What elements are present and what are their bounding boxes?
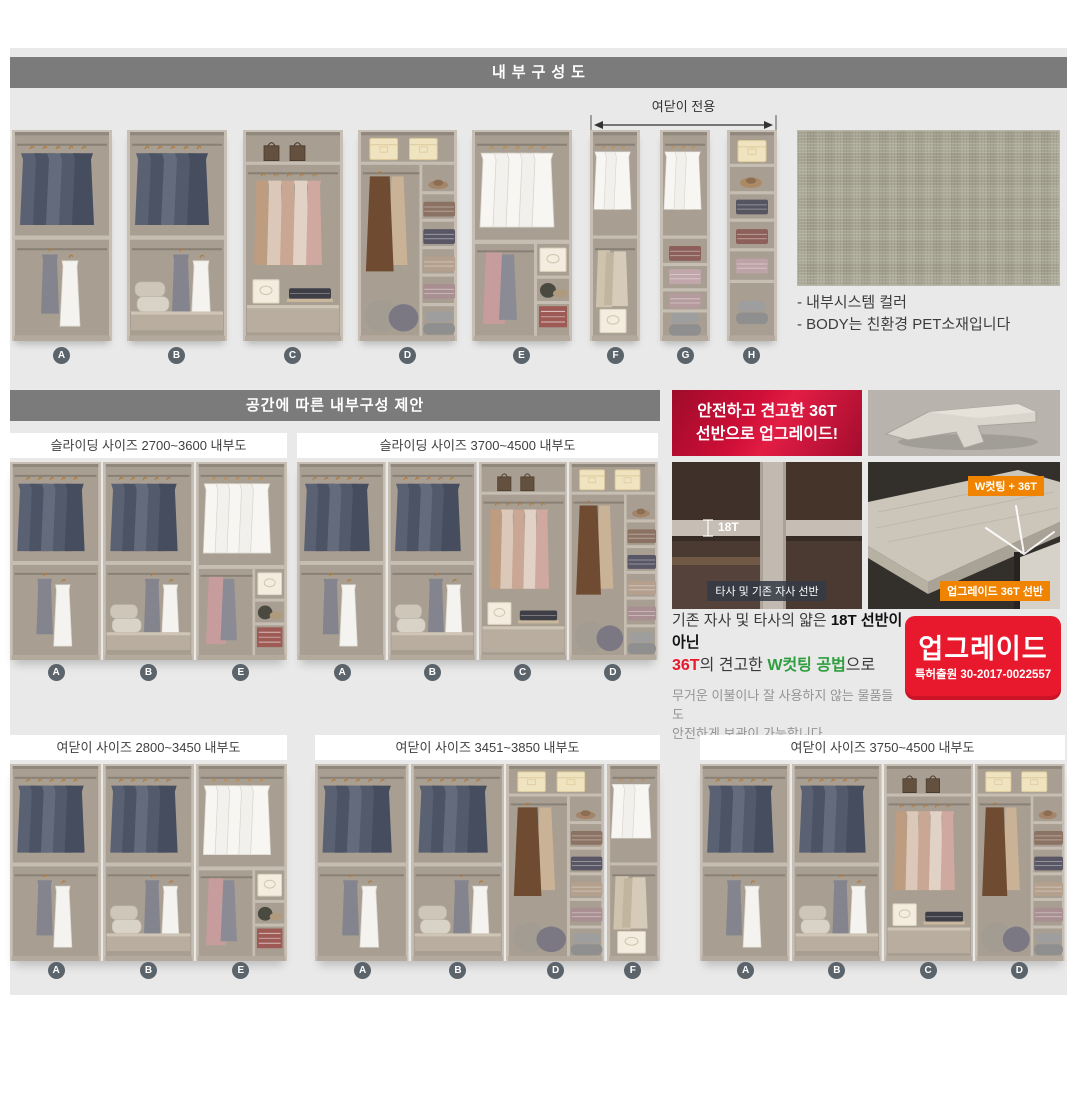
wardrobe-unit-c: [479, 462, 568, 660]
hinged-panel-2-image: [315, 764, 660, 961]
wardrobe-unit-b: [792, 764, 882, 961]
upgrade-banner: 안전하고 견고한 36T 선반으로 업그레이드!: [672, 390, 862, 456]
unit-label-d: D: [547, 962, 564, 979]
unit-label-g: G: [677, 347, 694, 364]
hinged-panel-2-labels: A B D F: [315, 962, 660, 979]
swatch-note-body: - BODY는 친환경 PET소재입니다: [797, 314, 1067, 336]
swatch-note-color: - 내부시스템 컬러: [797, 292, 1067, 314]
unit-label-e: E: [513, 347, 530, 364]
unit-label-b: B: [828, 962, 845, 979]
unit-label-c: C: [514, 664, 531, 681]
upgrade-description: 기존 자사 및 타사의 얇은 18T 선반이 아닌 36T의 견고한 W컷팅 공…: [672, 610, 904, 743]
wardrobe-unit-e: [472, 130, 572, 341]
wardrobe-unit-h: [727, 130, 777, 341]
wardrobe-unit-f: [590, 130, 640, 341]
wardrobe-unit-d: [569, 462, 658, 660]
upgrade-banner-line1: 안전하고 견고한 36T: [672, 400, 862, 423]
unit-label-a: A: [48, 962, 65, 979]
unit-label-a: A: [48, 664, 65, 681]
hinged-panel-1-image: [10, 764, 287, 961]
hinged-panel-2-title: 여닫이 사이즈 3451~3850 내부도: [315, 735, 660, 760]
hinged-panel-3-image: [700, 764, 1065, 961]
wardrobe-unit-c: [884, 764, 974, 961]
hinged-panel-1-labels: A B E: [10, 962, 287, 979]
old-shelf-photo: 18T 타사 및 기존 자사 선반: [672, 462, 862, 609]
sliding-panel-1-image: [10, 462, 287, 660]
unit-label-a: A: [334, 664, 351, 681]
unit-label-a: A: [53, 347, 70, 364]
upgrade-patent-stamp: 업그레이드 특허출원 30-2017-0022557: [905, 616, 1061, 700]
hinged-only-label: 여닫이 전용: [590, 96, 777, 115]
wardrobe-unit-b: [388, 462, 477, 660]
wardrobe-unit-f: [607, 764, 660, 961]
wardrobe-unit-b: [411, 764, 505, 961]
sliding-panel-1-title: 슬라이딩 사이즈 2700~3600 내부도: [10, 433, 287, 458]
old-shelf-badge: 타사 및 기존 자사 선반: [707, 581, 826, 601]
unit-label-b: B: [140, 664, 157, 681]
wardrobe-unit-a: [10, 462, 101, 660]
hinged-panel-3-labels: A B C D: [700, 962, 1065, 979]
wardrobe-unit-e: [196, 462, 287, 660]
new-shelf-badge-top: W컷팅 + 36T: [968, 476, 1044, 496]
new-shelf-photo: W컷팅 + 36T 업그레이드 36T 선반: [868, 462, 1060, 609]
hinged-only-bracket: 여닫이 전용: [590, 96, 777, 134]
swatch-notes: - 내부시스템 컬러 - BODY는 친환경 PET소재입니다: [797, 292, 1067, 336]
unit-label-e: E: [232, 664, 249, 681]
wardrobe-unit-c: [243, 130, 343, 341]
wardrobe-unit-a: [297, 462, 386, 660]
unit-label-d: D: [399, 347, 416, 364]
unit-label-h: H: [743, 347, 760, 364]
unit-label-e: E: [232, 962, 249, 979]
new-shelf-badge-bottom: 업그레이드 36T 선반: [940, 581, 1050, 601]
wardrobe-unit-d: [358, 130, 457, 341]
unit-label-f: F: [607, 347, 624, 364]
upgrade-desc-line2: 36T의 견고한 W컷팅 공법으로: [672, 654, 904, 678]
unit-label-b: B: [140, 962, 157, 979]
wardrobe-unit-d: [506, 764, 604, 961]
unit-label-d: D: [1011, 962, 1028, 979]
unit-label-a: A: [354, 962, 371, 979]
unit-label-c: C: [920, 962, 937, 979]
wardrobe-unit-a: [12, 130, 112, 341]
wardrobe-unit-a: [700, 764, 790, 961]
unit-label-d: D: [604, 664, 621, 681]
hinged-panel-3-title: 여닫이 사이즈 3750~4500 내부도: [700, 735, 1065, 760]
wardrobe-unit-b: [127, 130, 227, 341]
old-shelf-thickness-label: 18T: [718, 520, 739, 534]
unit-label-b: B: [449, 962, 466, 979]
sliding-panel-2-labels: A B C D: [297, 664, 658, 681]
wardrobe-unit-a: [315, 764, 409, 961]
wardrobe-unit-g: [660, 130, 710, 341]
unit-label-c: C: [284, 347, 301, 364]
sliding-panel-2-image: [297, 462, 658, 660]
wardrobe-unit-b: [103, 462, 194, 660]
unit-label-b: B: [168, 347, 185, 364]
upgrade-banner-line2: 선반으로 업그레이드!: [672, 423, 862, 446]
wardrobe-unit-b: [103, 764, 194, 961]
wardrobe-unit-a: [10, 764, 101, 961]
wardrobe-unit-d: [975, 764, 1065, 961]
unit-label-a: A: [737, 962, 754, 979]
shelf-bracket-photo: [868, 390, 1060, 456]
wardrobe-unit-e: [196, 764, 287, 961]
section-title-internal-config: 내부구성도: [10, 57, 1067, 88]
unit-label-b: B: [424, 664, 441, 681]
sliding-panel-2-title: 슬라이딩 사이즈 3700~4500 내부도: [297, 433, 658, 458]
interior-color-swatch: [797, 130, 1060, 286]
catalog-page: 내부구성도 여닫이 전용 A B C D E F G H - 내부시스템 컬러 …: [0, 0, 1077, 1093]
upgrade-desc-line1: 기존 자사 및 타사의 얇은 18T 선반이 아닌: [672, 610, 904, 654]
unit-label-f: F: [624, 962, 641, 979]
upgrade-stamp-title: 업그레이드: [905, 634, 1061, 664]
section-title-suggestions: 공간에 따른 내부구성 제안: [10, 390, 660, 421]
sliding-panel-1-labels: A B E: [10, 664, 287, 681]
upgrade-stamp-patent-number: 특허출원 30-2017-0022557: [905, 666, 1061, 682]
hinged-panel-1-title: 여닫이 사이즈 2800~3450 내부도: [10, 735, 287, 760]
